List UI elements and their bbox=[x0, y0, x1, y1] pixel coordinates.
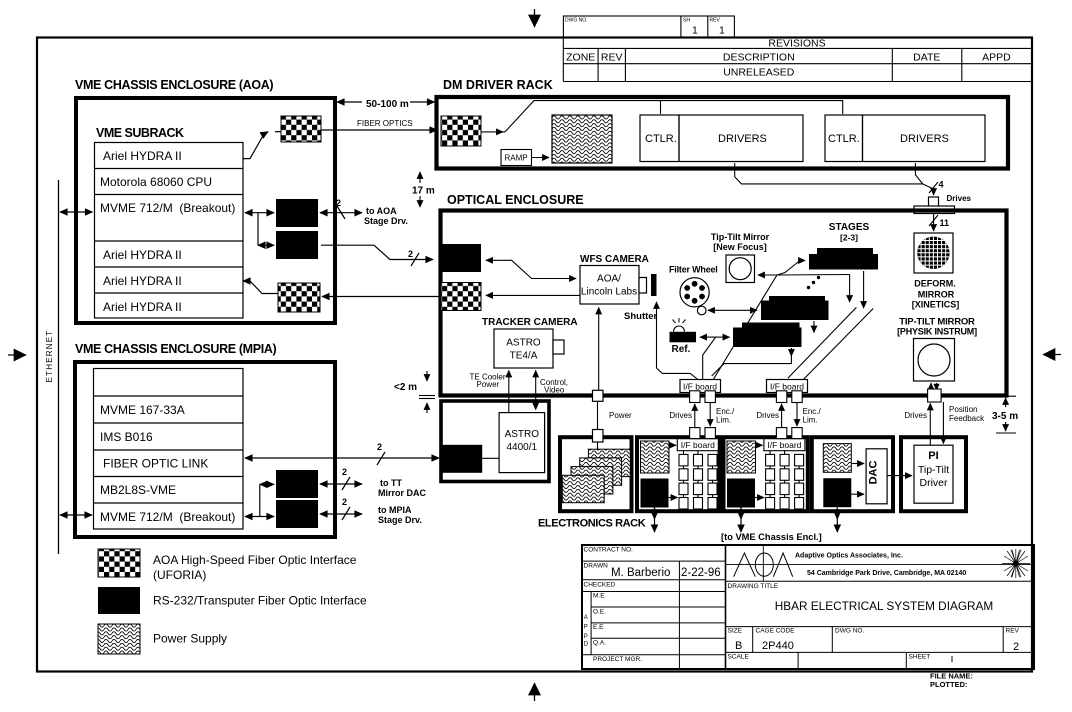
svg-text:2: 2 bbox=[342, 497, 347, 507]
svg-text:4: 4 bbox=[939, 180, 944, 190]
svg-text:CTLR.: CTLR. bbox=[828, 133, 860, 145]
svg-text:DRIVERS: DRIVERS bbox=[718, 133, 767, 145]
svg-text:Stage Drv.: Stage Drv. bbox=[364, 216, 408, 226]
svg-text:VME CHASSIS ENCLOSURE (MPIA): VME CHASSIS ENCLOSURE (MPIA) bbox=[75, 342, 277, 356]
svg-text:PROJECT MGR.: PROJECT MGR. bbox=[593, 656, 642, 663]
svg-text:2: 2 bbox=[1013, 641, 1019, 653]
svg-text:Lim.: Lim. bbox=[716, 416, 731, 425]
svg-text:DATE: DATE bbox=[913, 51, 940, 63]
svg-text:P: P bbox=[584, 634, 588, 640]
svg-text:ASTRO: ASTRO bbox=[505, 429, 540, 440]
svg-text:Ariel HYDRA II: Ariel HYDRA II bbox=[103, 274, 182, 288]
svg-text:Adaptive Optics Associates, In: Adaptive Optics Associates, Inc. bbox=[795, 553, 903, 560]
svg-text:2P440: 2P440 bbox=[762, 640, 794, 652]
svg-text:SHEET: SHEET bbox=[909, 654, 931, 661]
svg-text:Drives: Drives bbox=[669, 411, 692, 420]
svg-text:2: 2 bbox=[342, 467, 347, 477]
svg-text:Tip-Tilt Mirror: Tip-Tilt Mirror bbox=[711, 232, 770, 242]
svg-text:I/F board: I/F board bbox=[683, 382, 717, 392]
svg-text:APPD: APPD bbox=[982, 51, 1011, 63]
svg-text:ELECTRONICS RACK: ELECTRONICS RACK bbox=[538, 518, 646, 530]
svg-text:E.E: E.E bbox=[593, 624, 604, 631]
svg-text:DWG NO.: DWG NO. bbox=[565, 18, 588, 24]
svg-text:B: B bbox=[735, 640, 742, 652]
svg-text:3-5 m: 3-5 m bbox=[992, 411, 1018, 422]
svg-text:Driver: Driver bbox=[920, 477, 949, 489]
svg-text:17 m: 17 m bbox=[412, 186, 435, 197]
svg-text:1: 1 bbox=[719, 25, 725, 37]
svg-text:ETHERNET: ETHERNET bbox=[45, 330, 54, 383]
svg-text:D: D bbox=[584, 642, 589, 648]
svg-text:CONTRACT NO.: CONTRACT NO. bbox=[584, 547, 634, 554]
svg-text:Shutter: Shutter bbox=[624, 311, 658, 322]
svg-text:VME SUBRACK: VME SUBRACK bbox=[96, 126, 184, 140]
svg-text:DM DRIVER RACK: DM DRIVER RACK bbox=[443, 78, 553, 92]
svg-text:AOA/: AOA/ bbox=[597, 274, 621, 285]
svg-text:2: 2 bbox=[377, 442, 382, 452]
svg-text:A: A bbox=[584, 615, 588, 621]
svg-text:SIZE: SIZE bbox=[728, 628, 743, 635]
svg-text:ZONE: ZONE bbox=[566, 51, 595, 63]
svg-text:RS-232/Transputer Fiber Optic: RS-232/Transputer Fiber Optic Interface bbox=[153, 594, 367, 608]
svg-text:CTLR.: CTLR. bbox=[645, 133, 677, 145]
svg-text:MVME 167-33A: MVME 167-33A bbox=[100, 403, 185, 417]
svg-text:[PHYSIK INSTRUM]: [PHYSIK INSTRUM] bbox=[897, 327, 977, 337]
svg-text:Ref.: Ref. bbox=[672, 344, 691, 355]
svg-text:DRIVERS: DRIVERS bbox=[900, 133, 949, 145]
svg-text:11: 11 bbox=[940, 218, 950, 228]
svg-text:Stage Drv.: Stage Drv. bbox=[378, 515, 422, 525]
svg-text:Power: Power bbox=[609, 411, 632, 420]
svg-text:Tip-Tilt: Tip-Tilt bbox=[918, 464, 949, 476]
svg-text:2-22-96: 2-22-96 bbox=[681, 567, 721, 579]
svg-text:Ariel HYDRA II: Ariel HYDRA II bbox=[103, 300, 182, 314]
svg-text:Drives: Drives bbox=[947, 194, 972, 203]
svg-text:[XINETICS]: [XINETICS] bbox=[912, 300, 960, 310]
svg-text:OPTICAL ENCLOSURE: OPTICAL ENCLOSURE bbox=[447, 193, 584, 207]
svg-text:I/F board: I/F board bbox=[767, 440, 801, 450]
svg-text:[to VME Chassis Encl.]: [to VME Chassis Encl.] bbox=[721, 532, 822, 542]
svg-text:DRAWING TITLE: DRAWING TITLE bbox=[728, 583, 779, 590]
svg-text:Feedback: Feedback bbox=[949, 414, 985, 423]
svg-text:2: 2 bbox=[408, 249, 413, 259]
svg-text:TE4/A: TE4/A bbox=[510, 351, 538, 362]
svg-text:Drives: Drives bbox=[756, 411, 779, 420]
svg-text:Drives: Drives bbox=[904, 411, 927, 420]
svg-text:<2 m: <2 m bbox=[394, 382, 417, 393]
svg-text:Power: Power bbox=[477, 380, 500, 389]
svg-text:(UFORIA): (UFORIA) bbox=[153, 568, 206, 582]
svg-text:VME CHASSIS ENCLOSURE (AOA): VME CHASSIS ENCLOSURE (AOA) bbox=[75, 78, 273, 92]
svg-text:HBAR ELECTRICAL SYSTEM DIAGRAM: HBAR ELECTRICAL SYSTEM DIAGRAM bbox=[775, 599, 994, 613]
svg-text:DRAWN: DRAWN bbox=[584, 563, 609, 570]
svg-text:to MPIA: to MPIA bbox=[378, 505, 412, 515]
svg-text:to AOA: to AOA bbox=[366, 206, 397, 216]
svg-text:IMS B016: IMS B016 bbox=[100, 430, 153, 444]
svg-text:FIBER OPTICS: FIBER OPTICS bbox=[357, 119, 413, 128]
svg-text:ASTRO: ASTRO bbox=[506, 338, 541, 349]
svg-text:Power Supply: Power Supply bbox=[153, 632, 227, 646]
svg-text:M. Barberio: M. Barberio bbox=[611, 567, 670, 579]
svg-text:Lincoln Labs: Lincoln Labs bbox=[581, 287, 637, 298]
svg-text:WFS CAMERA: WFS CAMERA bbox=[580, 254, 649, 265]
svg-text:MVME 712/M (Breakout): MVME 712/M (Breakout) bbox=[100, 201, 235, 215]
svg-text:REV: REV bbox=[601, 51, 623, 63]
svg-text:Video: Video bbox=[544, 386, 565, 395]
svg-text:Position: Position bbox=[949, 405, 977, 414]
svg-text:Ariel HYDRA II: Ariel HYDRA II bbox=[103, 149, 182, 163]
svg-text:PLOTTED:: PLOTTED: bbox=[930, 680, 968, 689]
svg-text:UNRELEASED: UNRELEASED bbox=[723, 67, 795, 79]
svg-text:DAC: DAC bbox=[868, 461, 880, 485]
svg-text:P: P bbox=[584, 625, 588, 631]
svg-text:CAGE CODE: CAGE CODE bbox=[756, 628, 796, 635]
svg-text:I/F board: I/F board bbox=[770, 382, 804, 392]
svg-text:2: 2 bbox=[336, 198, 341, 208]
svg-text:STAGES: STAGES bbox=[829, 222, 870, 233]
svg-text:54 Cambridge Park Drive, Cambr: 54 Cambridge Park Drive, Cambridge, MA 0… bbox=[807, 570, 966, 577]
svg-text:REV: REV bbox=[710, 18, 721, 24]
svg-text:Ariel HYDRA II: Ariel HYDRA II bbox=[103, 248, 182, 262]
svg-text:50-100 m: 50-100 m bbox=[366, 99, 409, 110]
svg-text:TRACKER CAMERA: TRACKER CAMERA bbox=[482, 317, 578, 328]
svg-text:SCALE: SCALE bbox=[728, 654, 750, 661]
svg-text:to TT: to TT bbox=[380, 478, 402, 488]
svg-text:[New Focus]: [New Focus] bbox=[713, 242, 767, 252]
svg-text:O.E.: O.E. bbox=[593, 609, 606, 616]
svg-text:MIRROR: MIRROR bbox=[918, 290, 955, 300]
svg-text:REV: REV bbox=[1006, 628, 1020, 635]
svg-text:I/F board: I/F board bbox=[681, 440, 715, 450]
svg-text:4400/1: 4400/1 bbox=[507, 442, 538, 453]
svg-text:Mirror DAC: Mirror DAC bbox=[378, 488, 427, 498]
svg-text:1: 1 bbox=[692, 25, 698, 37]
svg-text:MB2L8S-VME: MB2L8S-VME bbox=[100, 483, 176, 497]
svg-text:DEFORM.: DEFORM. bbox=[914, 279, 956, 289]
svg-text:AOA High-Speed Fiber Optic Int: AOA High-Speed Fiber Optic Interface bbox=[153, 553, 357, 567]
svg-text:M.E: M.E bbox=[593, 593, 605, 600]
svg-text:DESCRIPTION: DESCRIPTION bbox=[723, 51, 795, 63]
svg-text:SH: SH bbox=[683, 18, 690, 24]
svg-text:Lim.: Lim. bbox=[803, 416, 818, 425]
svg-text:FIBER OPTIC LINK: FIBER OPTIC LINK bbox=[103, 457, 208, 471]
svg-text:CHECKED: CHECKED bbox=[584, 582, 616, 589]
svg-text:DWG NO.: DWG NO. bbox=[835, 628, 864, 635]
svg-text:Filter Wheel: Filter Wheel bbox=[669, 265, 718, 275]
svg-text:[2-3]: [2-3] bbox=[840, 233, 858, 243]
svg-text:MVME 712/M (Breakout): MVME 712/M (Breakout) bbox=[100, 510, 235, 524]
svg-text:PI: PI bbox=[928, 450, 938, 462]
svg-text:RAMP: RAMP bbox=[505, 154, 528, 163]
svg-text:REVISIONS: REVISIONS bbox=[768, 38, 825, 50]
svg-text:Motorola 68060 CPU: Motorola 68060 CPU bbox=[100, 175, 212, 189]
svg-text:Q.A.: Q.A. bbox=[593, 640, 606, 647]
